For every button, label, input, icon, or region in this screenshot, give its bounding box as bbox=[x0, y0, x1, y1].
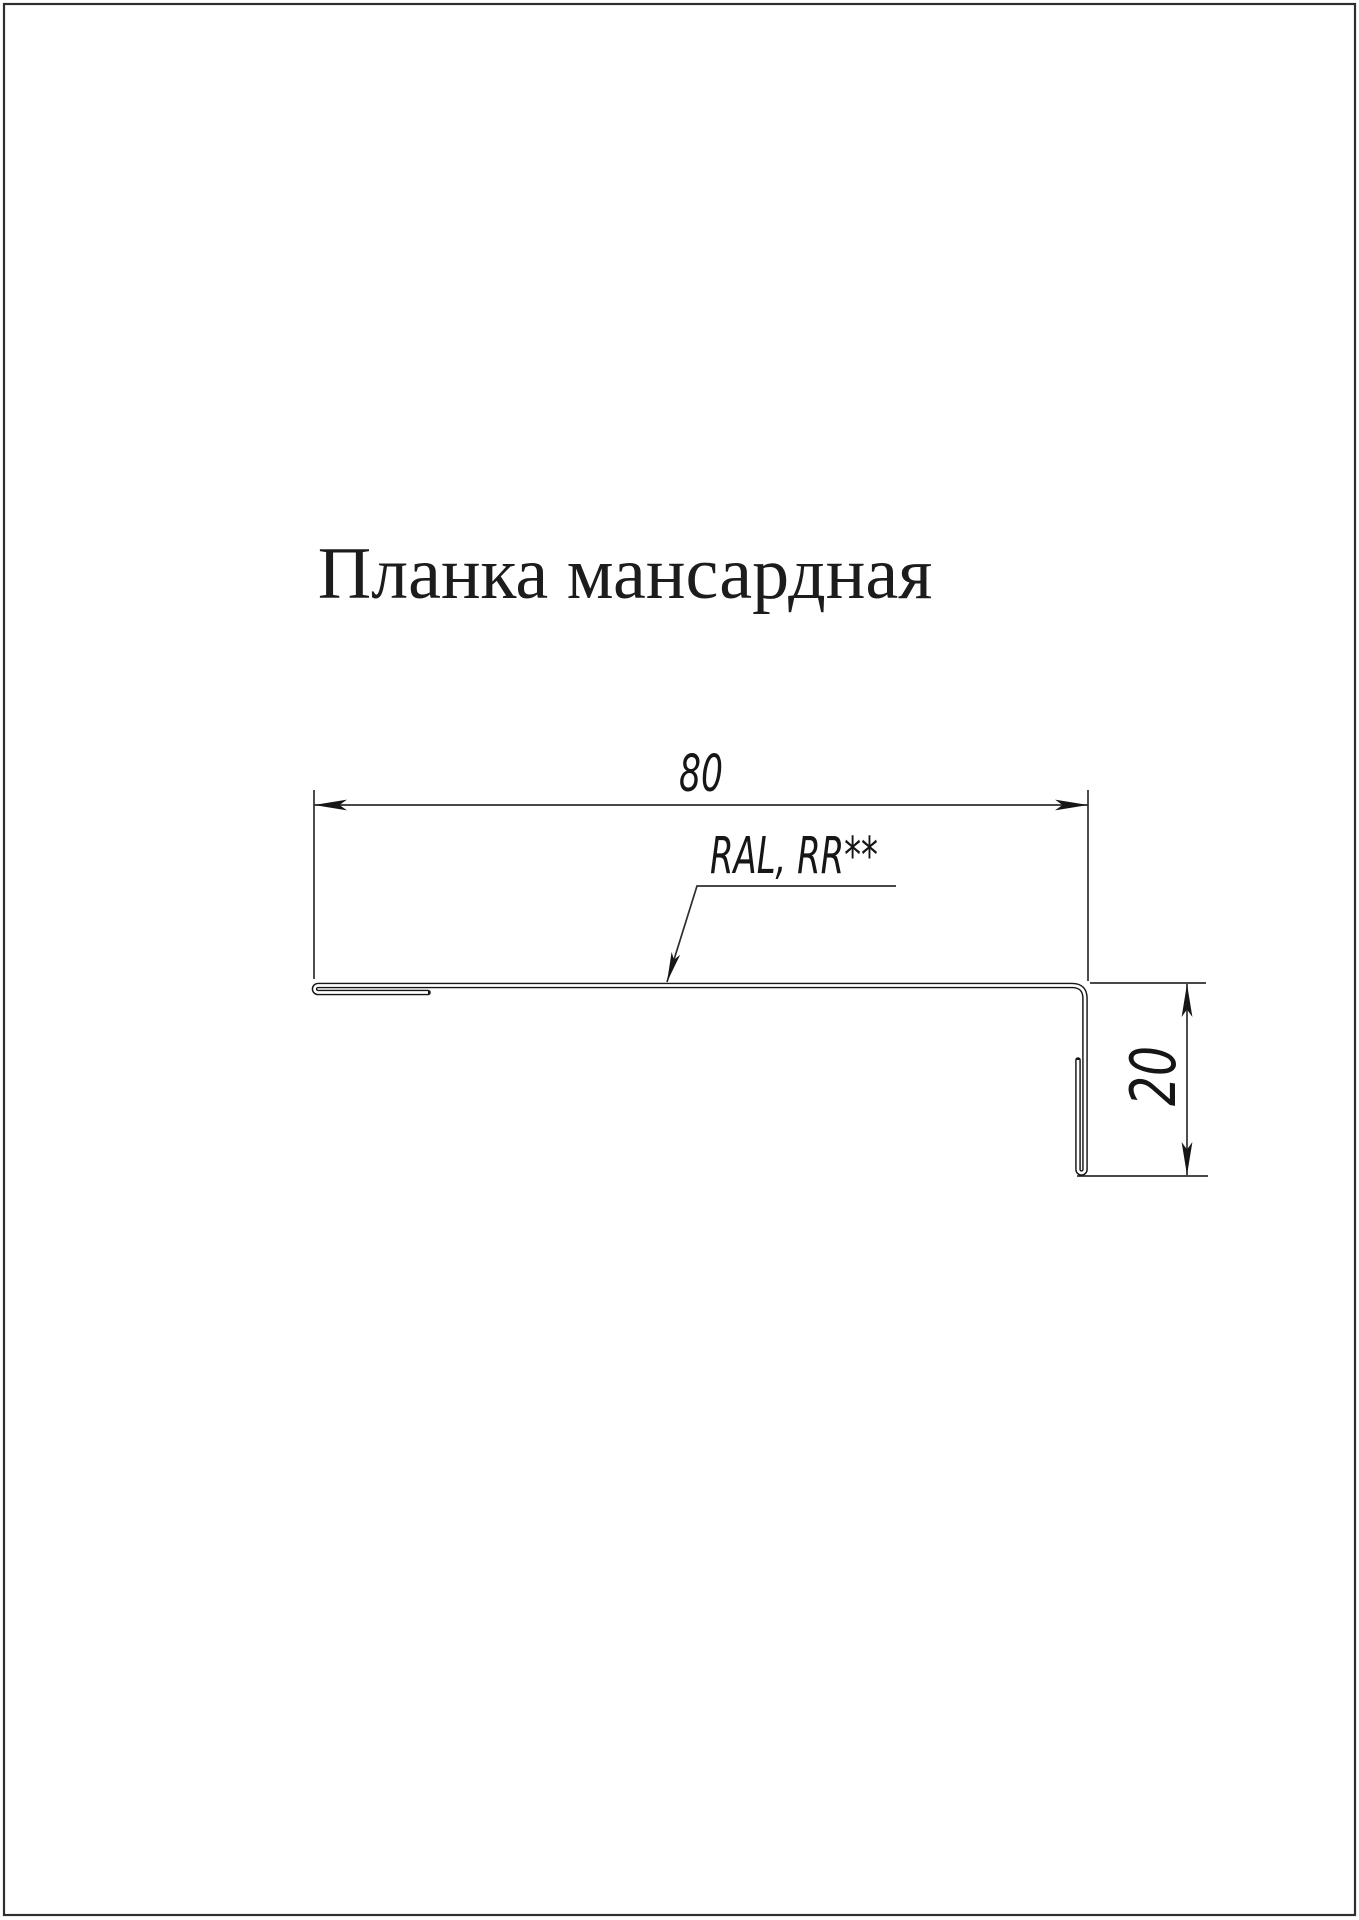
page-title: Планка мансардная bbox=[318, 533, 933, 615]
profile-outline bbox=[315, 986, 1086, 1174]
coating-label: RAL, RR** bbox=[710, 827, 878, 886]
profile-sheet-gap bbox=[315, 986, 1086, 1174]
dimension-arrows-and-text: 80 20 RAL, RR** bbox=[314, 745, 1192, 1175]
height-dimension-label: 20 bbox=[1117, 1046, 1190, 1106]
technical-drawing: 80 20 RAL, RR** Планка мансардная bbox=[0, 0, 1359, 1920]
width-dimension-label: 80 bbox=[679, 745, 723, 804]
profile bbox=[315, 986, 1086, 1174]
sheet-border bbox=[4, 4, 1355, 1915]
leader-line bbox=[667, 886, 896, 982]
drawing-sheet: 80 20 RAL, RR** Планка мансардная bbox=[0, 0, 1359, 1920]
leader-arrow bbox=[667, 952, 680, 982]
